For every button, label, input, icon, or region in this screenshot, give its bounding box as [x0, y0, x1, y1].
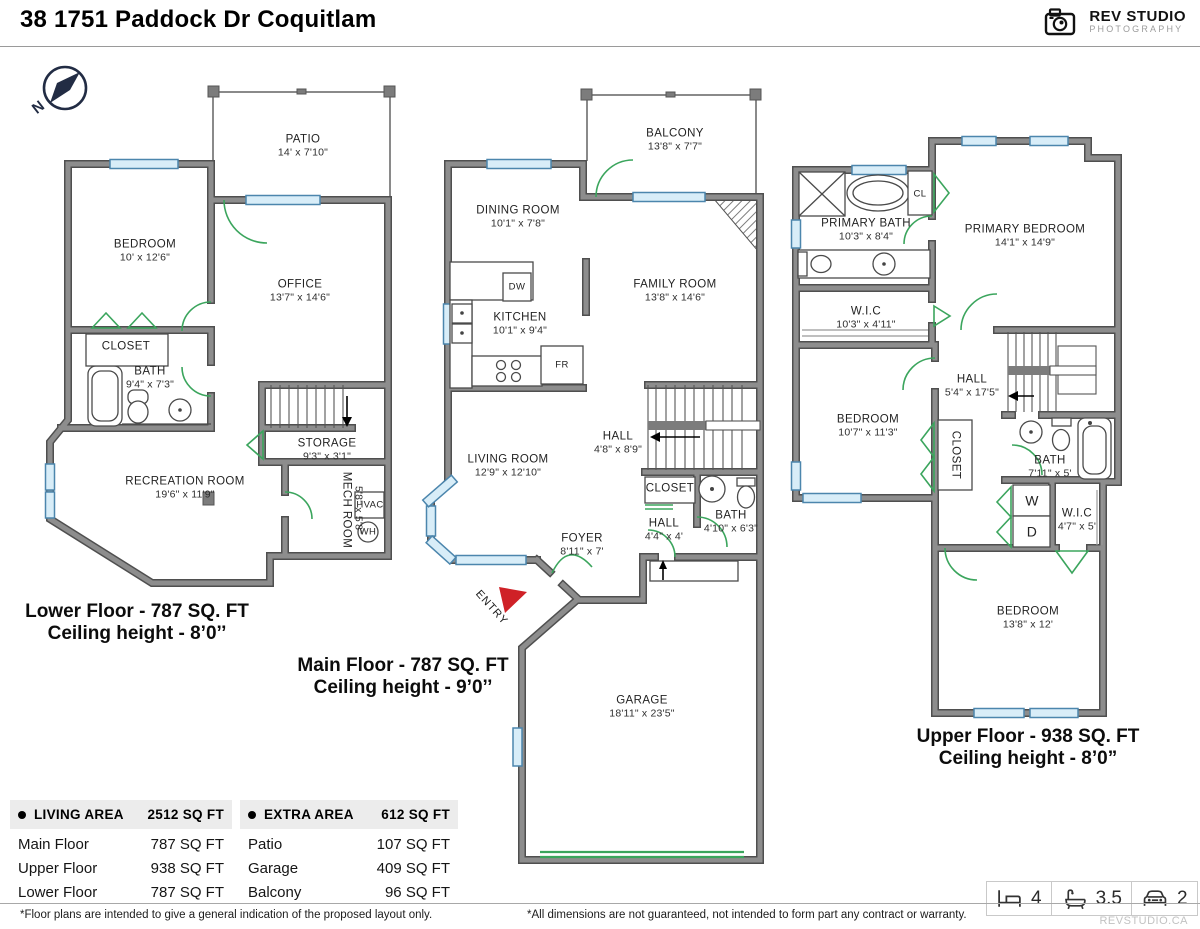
- room-label-wic-small: W.I.C4'7" x 5': [1058, 508, 1096, 533]
- living-area-table: LIVING AREA 2512 SQ FT Main Floor787 SQ …: [10, 800, 232, 901]
- room-label-cl: CL: [914, 188, 927, 201]
- room-label-balcony: BALCONY13'8" x 7'7": [646, 128, 704, 153]
- room-label-dining: DINING ROOM10'1" x 7'8": [476, 205, 560, 230]
- table-row: Upper Floor938 SQ FT: [10, 853, 232, 877]
- beds-stat: 4: [987, 882, 1051, 915]
- bullet-icon: [248, 811, 256, 819]
- room-label-bath-lower: BATH9'4" x 7'3": [126, 366, 174, 391]
- bed-icon: [996, 887, 1023, 910]
- room-label-closet-upper: CLOSET: [949, 431, 962, 479]
- lower-stairs: [271, 385, 352, 428]
- main-floor-title: Main Floor - 787 SQ. FTCeiling height - …: [297, 655, 508, 699]
- room-label-foyer: FOYER8'11" x 7': [560, 533, 603, 558]
- room-label-bath-upper: BATH7'11" x 5': [1028, 455, 1071, 480]
- room-label-hall-lower-main: HALL4'4" x 4': [645, 518, 683, 543]
- stats-bar: 4 3.5 2: [986, 881, 1198, 916]
- table-row: Garage409 SQ FT: [240, 853, 458, 877]
- footnote-center: *All dimensions are not guaranteed, not …: [527, 909, 967, 921]
- room-label-bedroom-left: BEDROOM10'7" x 11'3": [837, 414, 899, 439]
- lower-floor-title: Lower Floor - 787 SQ. FTCeiling height -…: [25, 601, 249, 645]
- table-row: Balcony96 SQ FT: [240, 877, 458, 901]
- room-label-bedroom-back: BEDROOM13'8" x 12': [997, 606, 1059, 631]
- table-row: Lower Floor787 SQ FT: [10, 877, 232, 901]
- car-icon: [1141, 887, 1169, 910]
- upper-floor-title: Upper Floor - 938 SQ. FTCeiling height -…: [917, 726, 1140, 770]
- label-washer: W: [1025, 495, 1039, 508]
- entry-alcove: [650, 560, 738, 581]
- extra-area-table: EXTRA AREA 612 SQ FT Patio107 SQ FT Gara…: [240, 800, 458, 901]
- upper-stairs: [1008, 332, 1096, 412]
- room-label-bedroom-lower: BEDROOM10' x 12'6": [114, 239, 176, 264]
- room-label-primary-bedroom: PRIMARY BEDROOM14'1" x 14'9": [965, 224, 1086, 249]
- room-label-wh: WH: [360, 526, 377, 539]
- footer-site: REVSTUDIO.CA: [1099, 915, 1188, 927]
- extra-area-header: EXTRA AREA 612 SQ FT: [240, 800, 458, 829]
- floor-plan-sheet: 38 1751 Paddock Dr Coquitlam REV STUDIO …: [0, 0, 1200, 929]
- table-row: Patio107 SQ FT: [240, 829, 458, 853]
- label-dryer: D: [1027, 526, 1038, 539]
- fireplace-hatch: [714, 199, 758, 251]
- room-label-closet-lower: CLOSET: [102, 341, 150, 354]
- entry-arrow: [499, 587, 527, 613]
- bathtub-icon: [1061, 887, 1088, 910]
- room-label-living: LIVING ROOM12'9" x 12'10": [467, 454, 548, 479]
- bullet-icon: [18, 811, 26, 819]
- room-label-bath-main: BATH4'10" x 6'3": [704, 510, 758, 535]
- label-dishwasher: DW: [509, 281, 526, 294]
- room-label-patio: PATIO14' x 7'10": [278, 134, 328, 159]
- room-label-hvac: HVAC: [356, 499, 383, 512]
- room-label-wic-main: W.I.C10'3" x 4'11": [836, 306, 895, 331]
- room-label-closet-main: CLOSET: [646, 483, 694, 496]
- room-label-garage: GARAGE18'11" x 23'5": [609, 695, 674, 720]
- label-fridge: FR: [555, 359, 568, 372]
- footnote-left: *Floor plans are intended to give a gene…: [20, 909, 432, 921]
- main-stairs: [648, 385, 760, 470]
- room-label-recreation: RECREATION ROOM19'6" x 11'9": [125, 476, 245, 501]
- room-label-family: FAMILY ROOM13'8" x 14'6": [633, 279, 716, 304]
- room-label-hall-upper: HALL5'4" x 17'5": [945, 374, 999, 399]
- room-label-primary-bath: PRIMARY BATH10'3" x 8'4": [821, 218, 911, 243]
- garage-door: [540, 852, 744, 857]
- table-row: Main Floor787 SQ FT: [10, 829, 232, 853]
- room-label-hall-upper-main: HALL4'8" x 8'9": [594, 431, 642, 456]
- room-label-office: OFFICE13'7" x 14'6": [270, 279, 330, 304]
- baths-stat: 3.5: [1051, 882, 1131, 915]
- floor-plan-drawing: [0, 0, 1200, 929]
- room-label-kitchen: KITCHEN10'1" x 9'4": [493, 312, 547, 337]
- cars-stat: 2: [1131, 882, 1197, 915]
- room-label-storage: STORAGE9'3" x 3'1": [298, 438, 357, 463]
- footer-divider: [0, 903, 1200, 904]
- living-area-header: LIVING AREA 2512 SQ FT: [10, 800, 232, 829]
